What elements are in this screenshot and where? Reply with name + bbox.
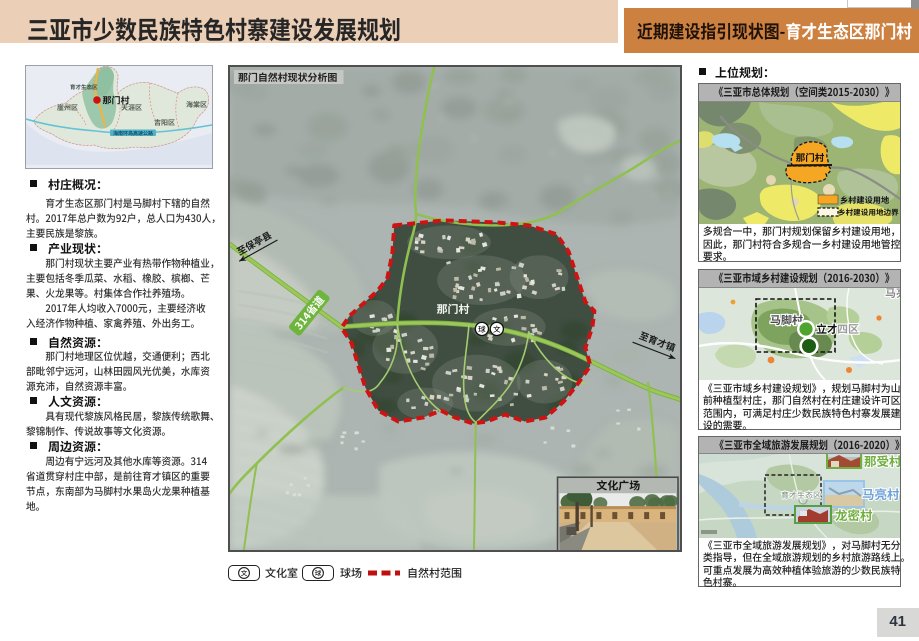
svg-text:天涯区: 天涯区: [121, 103, 142, 113]
svg-text:立才: 立才: [816, 321, 838, 337]
svg-text:育才生态区: 育才生态区: [70, 83, 98, 91]
svg-text:龙密村: 龙密村: [835, 505, 873, 524]
svg-text:马亮村: 马亮村: [862, 484, 900, 503]
svg-text:乡村建设用地边界: 乡村建设用地边界: [838, 207, 899, 218]
svg-text:马亮: 马亮: [885, 288, 900, 301]
svg-text:吉阳区: 吉阳区: [154, 118, 175, 128]
svg-text:那门村: 那门村: [796, 150, 825, 164]
svg-text:四区: 四区: [837, 321, 859, 337]
svg-text:乡村建设用地: 乡村建设用地: [840, 194, 889, 206]
svg-text:球: 球: [315, 567, 322, 577]
svg-text:那受村: 那受村: [864, 454, 900, 470]
svg-text:文: 文: [493, 324, 501, 335]
svg-text:球: 球: [478, 324, 486, 335]
svg-text:海南环岛高速公路: 海南环岛高速公路: [113, 130, 153, 137]
svg-text:崖州区: 崖州区: [57, 103, 78, 113]
svg-text:文: 文: [241, 567, 248, 577]
svg-text:海棠区: 海棠区: [186, 100, 207, 110]
svg-text:文化广场: 文化广场: [596, 478, 640, 494]
svg-text:育才生态区: 育才生态区: [781, 490, 821, 501]
svg-text:那门村: 那门村: [437, 301, 470, 317]
svg-text:那门自然村现状分析图: 那门自然村现状分析图: [238, 69, 337, 84]
